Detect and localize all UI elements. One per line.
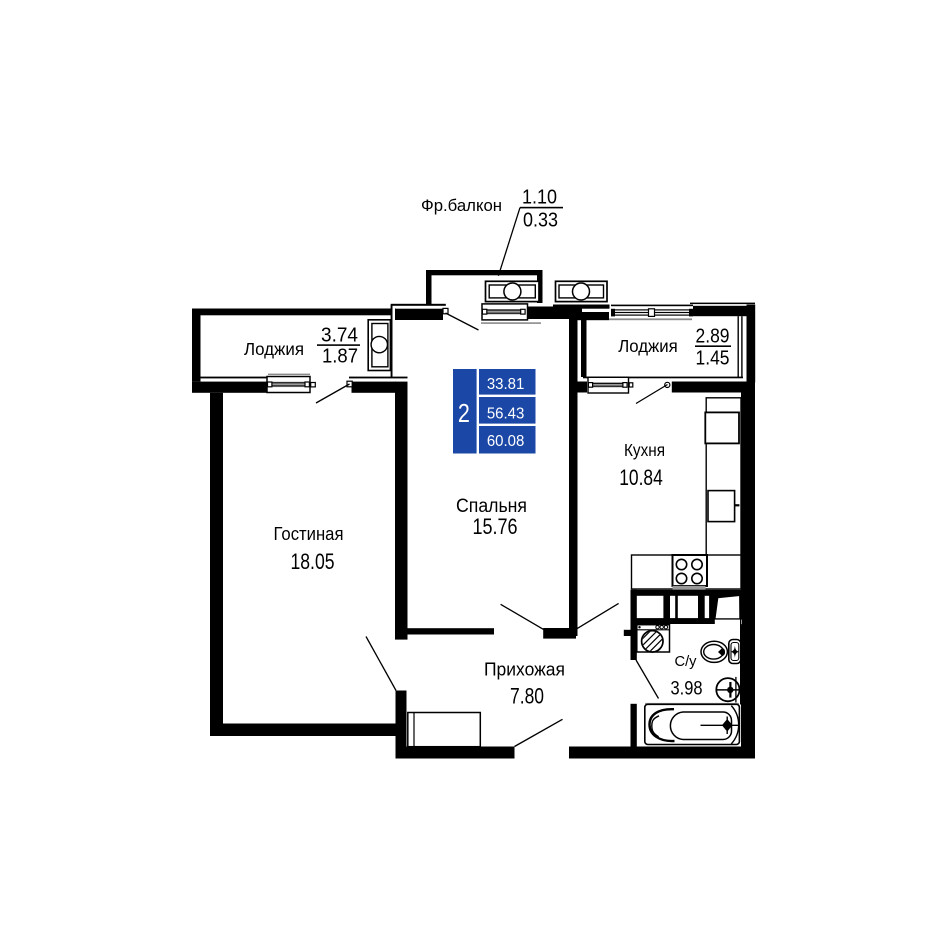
svg-text:2.89: 2.89 <box>696 325 730 348</box>
svg-text:15.76: 15.76 <box>473 514 518 539</box>
svg-text:18.05: 18.05 <box>291 549 335 574</box>
svg-text:Лоджия: Лоджия <box>618 336 678 356</box>
svg-text:Прихожая: Прихожая <box>484 660 565 680</box>
svg-text:0.33: 0.33 <box>523 209 558 232</box>
svg-text:1.87: 1.87 <box>322 345 358 368</box>
svg-text:7.80: 7.80 <box>510 684 544 709</box>
svg-text:2: 2 <box>458 398 470 428</box>
svg-text:10.84: 10.84 <box>619 465 663 490</box>
svg-text:Гостиная: Гостиная <box>274 524 344 544</box>
svg-text:56.43: 56.43 <box>487 405 525 422</box>
svg-text:Лоджия: Лоджия <box>244 339 304 359</box>
svg-text:Кухня: Кухня <box>624 440 665 460</box>
svg-text:3.74: 3.74 <box>321 324 358 347</box>
svg-text:60.08: 60.08 <box>487 433 525 450</box>
svg-text:3.98: 3.98 <box>671 679 703 700</box>
svg-text:С/у: С/у <box>675 654 698 670</box>
svg-text:1.45: 1.45 <box>696 347 730 370</box>
svg-text:Фр.балкон: Фр.балкон <box>421 196 502 215</box>
svg-text:33.81: 33.81 <box>487 376 525 393</box>
svg-text:1.10: 1.10 <box>522 186 557 209</box>
